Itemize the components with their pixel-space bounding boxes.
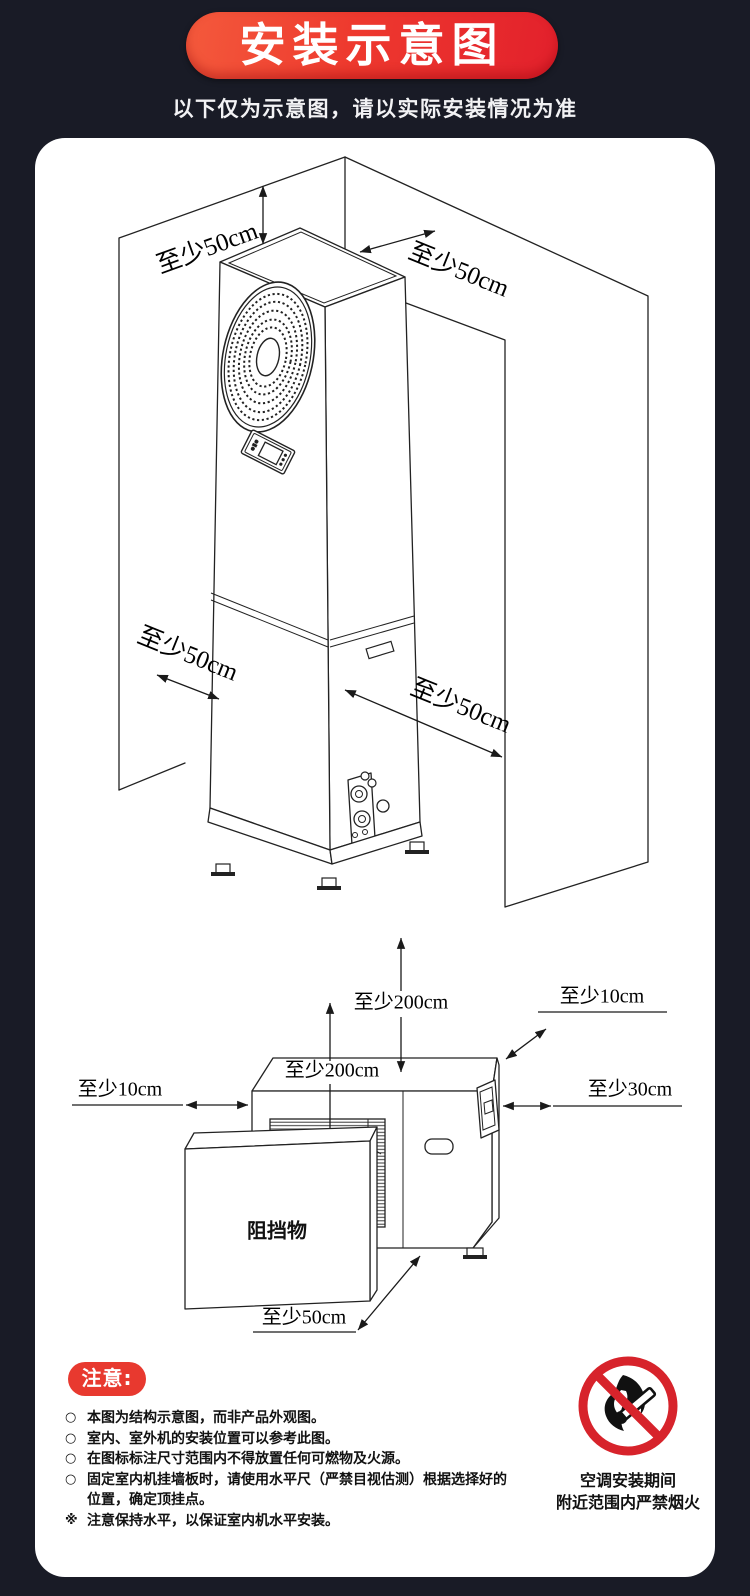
notice-item-text: 本图为结构示意图，而非产品外观图。	[87, 1408, 517, 1429]
page-title-banner: 安装示意图	[186, 12, 558, 79]
obstruction-label: 阻挡物	[247, 1219, 307, 1243]
clearance-label-top-surface: 至少200cm	[285, 1059, 380, 1082]
foot	[405, 842, 429, 854]
foot	[463, 1248, 487, 1259]
bullet-circle-icon: ○	[65, 1408, 87, 1429]
no-fire-warning: 空调安装期间 附近范围内严禁烟火	[523, 1354, 733, 1514]
notice-item-text: 注意保持水平，以保证室内机水平安装。	[87, 1511, 517, 1532]
notice-title-badge: 注意:	[68, 1362, 146, 1396]
front-handle	[425, 1139, 453, 1154]
clearance-label-front: 至少50cm	[262, 1306, 347, 1329]
notice-list: ○ 本图为结构示意图，而非产品外观图。 ○ 室内、室外机的安装位置可以参考此图。…	[65, 1408, 517, 1531]
bullet-circle-icon: ○	[65, 1429, 87, 1450]
page-title: 安装示意图	[240, 18, 505, 72]
clearance-label-back-corner: 至少10cm	[560, 985, 645, 1008]
content-card: 至少50cm 至少50cm 至少50cm 至少50cm	[35, 138, 715, 1577]
side-bracket	[477, 1080, 499, 1138]
bullet-circle-icon: ○	[65, 1470, 87, 1491]
foot	[317, 878, 341, 890]
notice-item: ○ 室内、室外机的安装位置可以参考此图。	[65, 1429, 517, 1450]
notice-item: ○ 固定室内机挂墙板时，请使用水平尺（严禁目视估测）根据选择好的位置，确定顶挂点…	[65, 1470, 517, 1511]
no-open-flames-icon	[576, 1354, 680, 1458]
clearance-label-left: 至少10cm	[78, 1078, 163, 1101]
outdoor-unit-installation-diagram: 至少200cm 至少200cm 至少10cm 至少10cm 至少30cm 阻挡物…	[40, 900, 700, 1360]
notice-item-text: 室内、室外机的安装位置可以参考此图。	[87, 1429, 517, 1450]
clearance-label-back: 至少50cm	[405, 238, 513, 303]
clearance-label-right: 至少30cm	[588, 1078, 673, 1101]
bullet-circle-icon: ○	[65, 1449, 87, 1470]
indoor-unit-installation-diagram: 至少50cm 至少50cm 至少50cm 至少50cm	[60, 138, 700, 928]
indoor-unit	[208, 228, 429, 890]
page: { "banner": { "title": "安装示意图", "subtitl…	[0, 0, 750, 1596]
reference-mark-icon: ※	[65, 1511, 87, 1532]
clearance-label-right: 至少50cm	[407, 674, 515, 739]
notice-title: 注意:	[82, 1366, 133, 1390]
notice-item-text: 在图标标注尺寸范围内不得放置任何可燃物及火源。	[87, 1449, 517, 1470]
notice-item: ○ 本图为结构示意图，而非产品外观图。	[65, 1408, 517, 1429]
page-subtitle: 以下仅为示意图，请以实际安装情况为准	[0, 93, 750, 123]
fire-warning-line1: 空调安装期间	[523, 1470, 733, 1492]
notice-item: ※ 注意保持水平，以保证室内机水平安装。	[65, 1511, 517, 1532]
notice-item: ○ 在图标标注尺寸范围内不得放置任何可燃物及火源。	[65, 1449, 517, 1470]
clearance-label-above: 至少200cm	[354, 991, 449, 1014]
obstruction-box: 阻挡物	[185, 1127, 377, 1309]
fire-warning-line2: 附近范围内严禁烟火	[523, 1492, 733, 1514]
notice-item-text: 固定室内机挂墙板时，请使用水平尺（严禁目视估测）根据选择好的位置，确定顶挂点。	[87, 1470, 517, 1511]
foot	[211, 864, 235, 876]
